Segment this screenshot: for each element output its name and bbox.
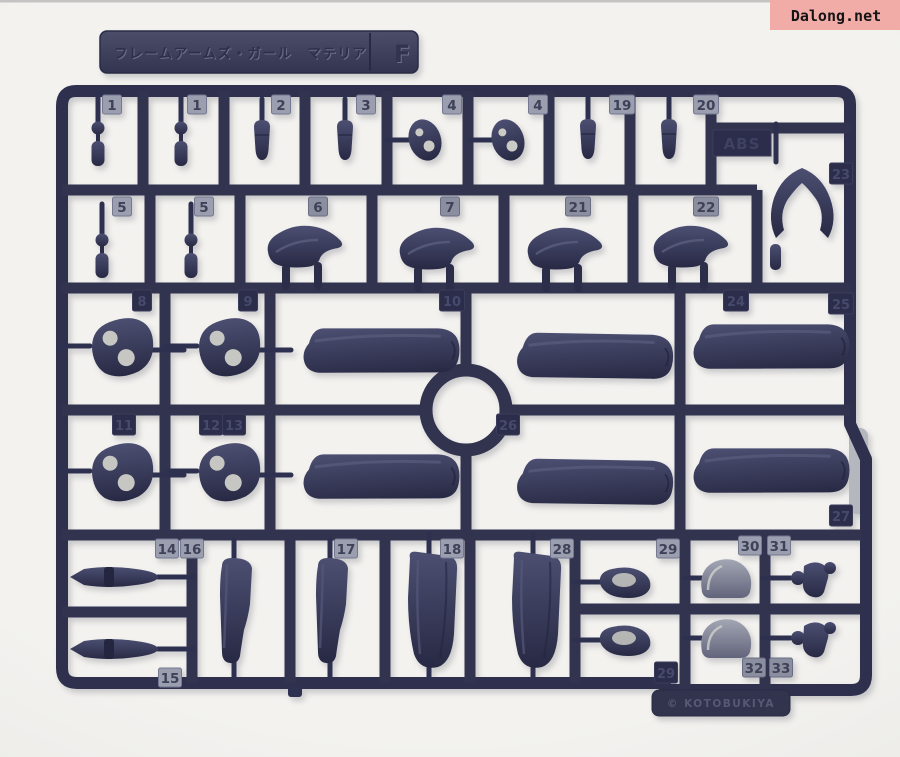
part-tab-22: 22 [694, 197, 719, 216]
sprue-center-ring [426, 370, 506, 450]
part-tab-27: 27 [830, 505, 853, 526]
part-tab-14: 14 [156, 539, 179, 558]
svg-text:16: 16 [183, 542, 202, 558]
part-tab-5b: 5 [195, 197, 214, 216]
part-17-leg [316, 540, 348, 686]
runner-letter: F [394, 40, 410, 68]
svg-text:32: 32 [745, 661, 764, 677]
part-5a [96, 204, 109, 278]
part-tab-19: 19 [610, 95, 635, 114]
part-tab-1a: 1 [103, 95, 122, 114]
part-4b [470, 115, 530, 165]
svg-text:23: 23 [832, 168, 850, 183]
copyright-tab: © KOTOBUKIYA [652, 690, 790, 716]
part-tab-11: 11 [113, 414, 136, 435]
part-tab-18: 18 [441, 539, 464, 558]
svg-text:31: 31 [770, 539, 789, 555]
part-tab-21: 21 [566, 197, 591, 216]
part-24-leg [516, 326, 675, 386]
part-27-leg [692, 439, 851, 502]
part-tab-29: 29 [657, 539, 680, 558]
part-tab-9: 9 [239, 290, 258, 311]
svg-text:8: 8 [137, 295, 146, 310]
gate-stub [288, 686, 302, 697]
svg-text:29: 29 [657, 667, 675, 682]
part-tab-31: 31 [768, 536, 791, 555]
part-tab-24: 24 [724, 290, 749, 311]
part-tab-16: 16 [181, 539, 204, 558]
svg-text:28: 28 [553, 542, 572, 558]
part-tab-17: 17 [335, 539, 358, 558]
part-tab-33: 33 [770, 658, 793, 677]
part-10-leg [302, 319, 461, 382]
svg-text:14: 14 [158, 542, 177, 558]
svg-text:18: 18 [443, 542, 462, 558]
svg-text:1: 1 [192, 98, 201, 114]
part-19 [580, 98, 596, 159]
svg-text:5: 5 [199, 200, 208, 216]
svg-text:30: 30 [741, 539, 760, 555]
part-26-leg [516, 452, 675, 512]
svg-text:1: 1 [107, 98, 116, 114]
material-label: ABS [724, 135, 761, 153]
part-2 [254, 99, 270, 160]
part-29a-cup [574, 568, 650, 598]
svg-text:17: 17 [337, 542, 356, 558]
part-33-knob [762, 622, 836, 657]
part-29b-cup [574, 626, 650, 656]
svg-text:15: 15 [161, 671, 180, 687]
runner-tag: フレームアームズ・ガール マテリア フレームアームズ・ガール マテリア F F [100, 31, 418, 73]
part-tab-29b: 29 [655, 662, 678, 683]
part-tab-8: 8 [133, 290, 152, 311]
sprue-grid-bars [62, 91, 861, 690]
part-tab-7: 7 [441, 197, 460, 216]
svg-text:5: 5 [117, 200, 126, 216]
part-tab-30: 30 [739, 536, 762, 555]
svg-text:12: 12 [202, 419, 220, 434]
svg-text:21: 21 [569, 200, 588, 216]
svg-text:4: 4 [447, 98, 456, 114]
part-tab-32: 32 [743, 658, 766, 677]
part-tab-20: 20 [694, 95, 719, 114]
part-tab-10: 10 [440, 290, 465, 311]
svg-text:22: 22 [697, 200, 716, 216]
svg-text:24: 24 [727, 295, 745, 310]
svg-text:7: 7 [445, 200, 454, 216]
svg-text:9: 9 [243, 295, 252, 310]
part-tab-25: 25 [829, 293, 854, 314]
runner-tag-title: フレームアームズ・ガール マテリア [114, 45, 367, 62]
copyright-text: © KOTOBUKIYA [667, 698, 775, 710]
svg-text:4: 4 [533, 98, 542, 114]
material-tab: ABS [713, 130, 771, 156]
part-20 [661, 98, 677, 159]
part-11-leg [302, 445, 461, 508]
part-4a [387, 115, 447, 165]
svg-text:11: 11 [115, 419, 133, 434]
part-31-knob [762, 562, 836, 597]
photo-top-edge [0, 0, 900, 3]
part-tab-4a: 4 [443, 95, 462, 114]
part-30-dome [684, 559, 751, 598]
part-tab-26: 26 [497, 414, 520, 435]
watermark-text: Dalong.net [791, 7, 881, 25]
part-tab-4b: 4 [529, 95, 548, 114]
part-14-spindle [70, 567, 194, 587]
svg-text:27: 27 [832, 510, 850, 525]
svg-text:26: 26 [499, 419, 517, 434]
part-tab-3: 3 [357, 95, 376, 114]
model-kit-runner-photo: Dalong.net フレームアームズ・ガール マテリア フレームアームズ・ガー… [0, 0, 900, 757]
watermark: Dalong.net [770, 0, 900, 30]
svg-text:19: 19 [613, 98, 632, 114]
part-tab-6: 6 [309, 197, 328, 216]
part-tab-28: 28 [551, 539, 574, 558]
part-23-collar [770, 124, 834, 270]
svg-text:6: 6 [313, 200, 322, 216]
part-3 [337, 99, 353, 160]
svg-text:20: 20 [697, 98, 716, 114]
part-22-shoe [654, 226, 728, 290]
part-1b [175, 92, 188, 166]
svg-text:29: 29 [659, 542, 678, 558]
part-6-shoe [268, 226, 342, 290]
part-21-shoe [528, 228, 602, 292]
part-32-dome [684, 619, 751, 658]
svg-text:13: 13 [225, 419, 243, 434]
svg-text:10: 10 [443, 295, 461, 310]
part-15-spindle [70, 639, 194, 659]
part-tab-5a: 5 [113, 197, 132, 216]
part-7-shoe [400, 228, 474, 292]
part-tab-13: 13 [223, 414, 246, 435]
svg-text:2: 2 [276, 98, 285, 114]
part-tab-12: 12 [200, 414, 223, 435]
part-16-leg [220, 540, 252, 686]
part-25-leg [692, 315, 851, 378]
svg-text:3: 3 [361, 98, 370, 114]
svg-text:33: 33 [772, 661, 791, 677]
svg-text:25: 25 [832, 298, 850, 313]
part-tab-15: 15 [159, 668, 182, 687]
part-tab-1b: 1 [188, 95, 207, 114]
part-tab-23: 23 [830, 163, 853, 184]
part-tab-2: 2 [272, 95, 291, 114]
